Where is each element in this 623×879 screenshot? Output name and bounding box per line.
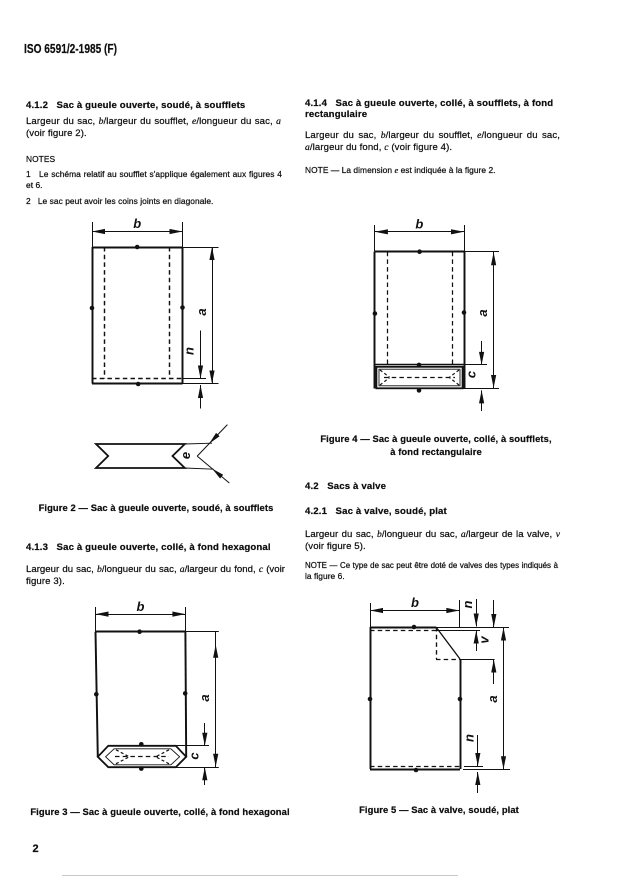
svg-text:a: a [197,694,212,701]
svg-text:c: c [464,370,479,378]
svg-text:a: a [194,308,209,315]
svg-text:a: a [485,695,500,702]
svg-text:b: b [411,595,419,610]
svg-text:n: n [182,347,197,355]
svg-text:b: b [415,217,423,232]
svg-text:e: e [178,452,193,459]
svg-text:b: b [133,216,141,231]
svg-text:a: a [475,309,490,316]
svg-text:b: b [137,599,145,614]
svg-text:c: c [187,752,202,760]
svg-text:v: v [477,636,492,644]
svg-text:n: n [460,600,475,608]
svg-text:n: n [462,734,477,742]
